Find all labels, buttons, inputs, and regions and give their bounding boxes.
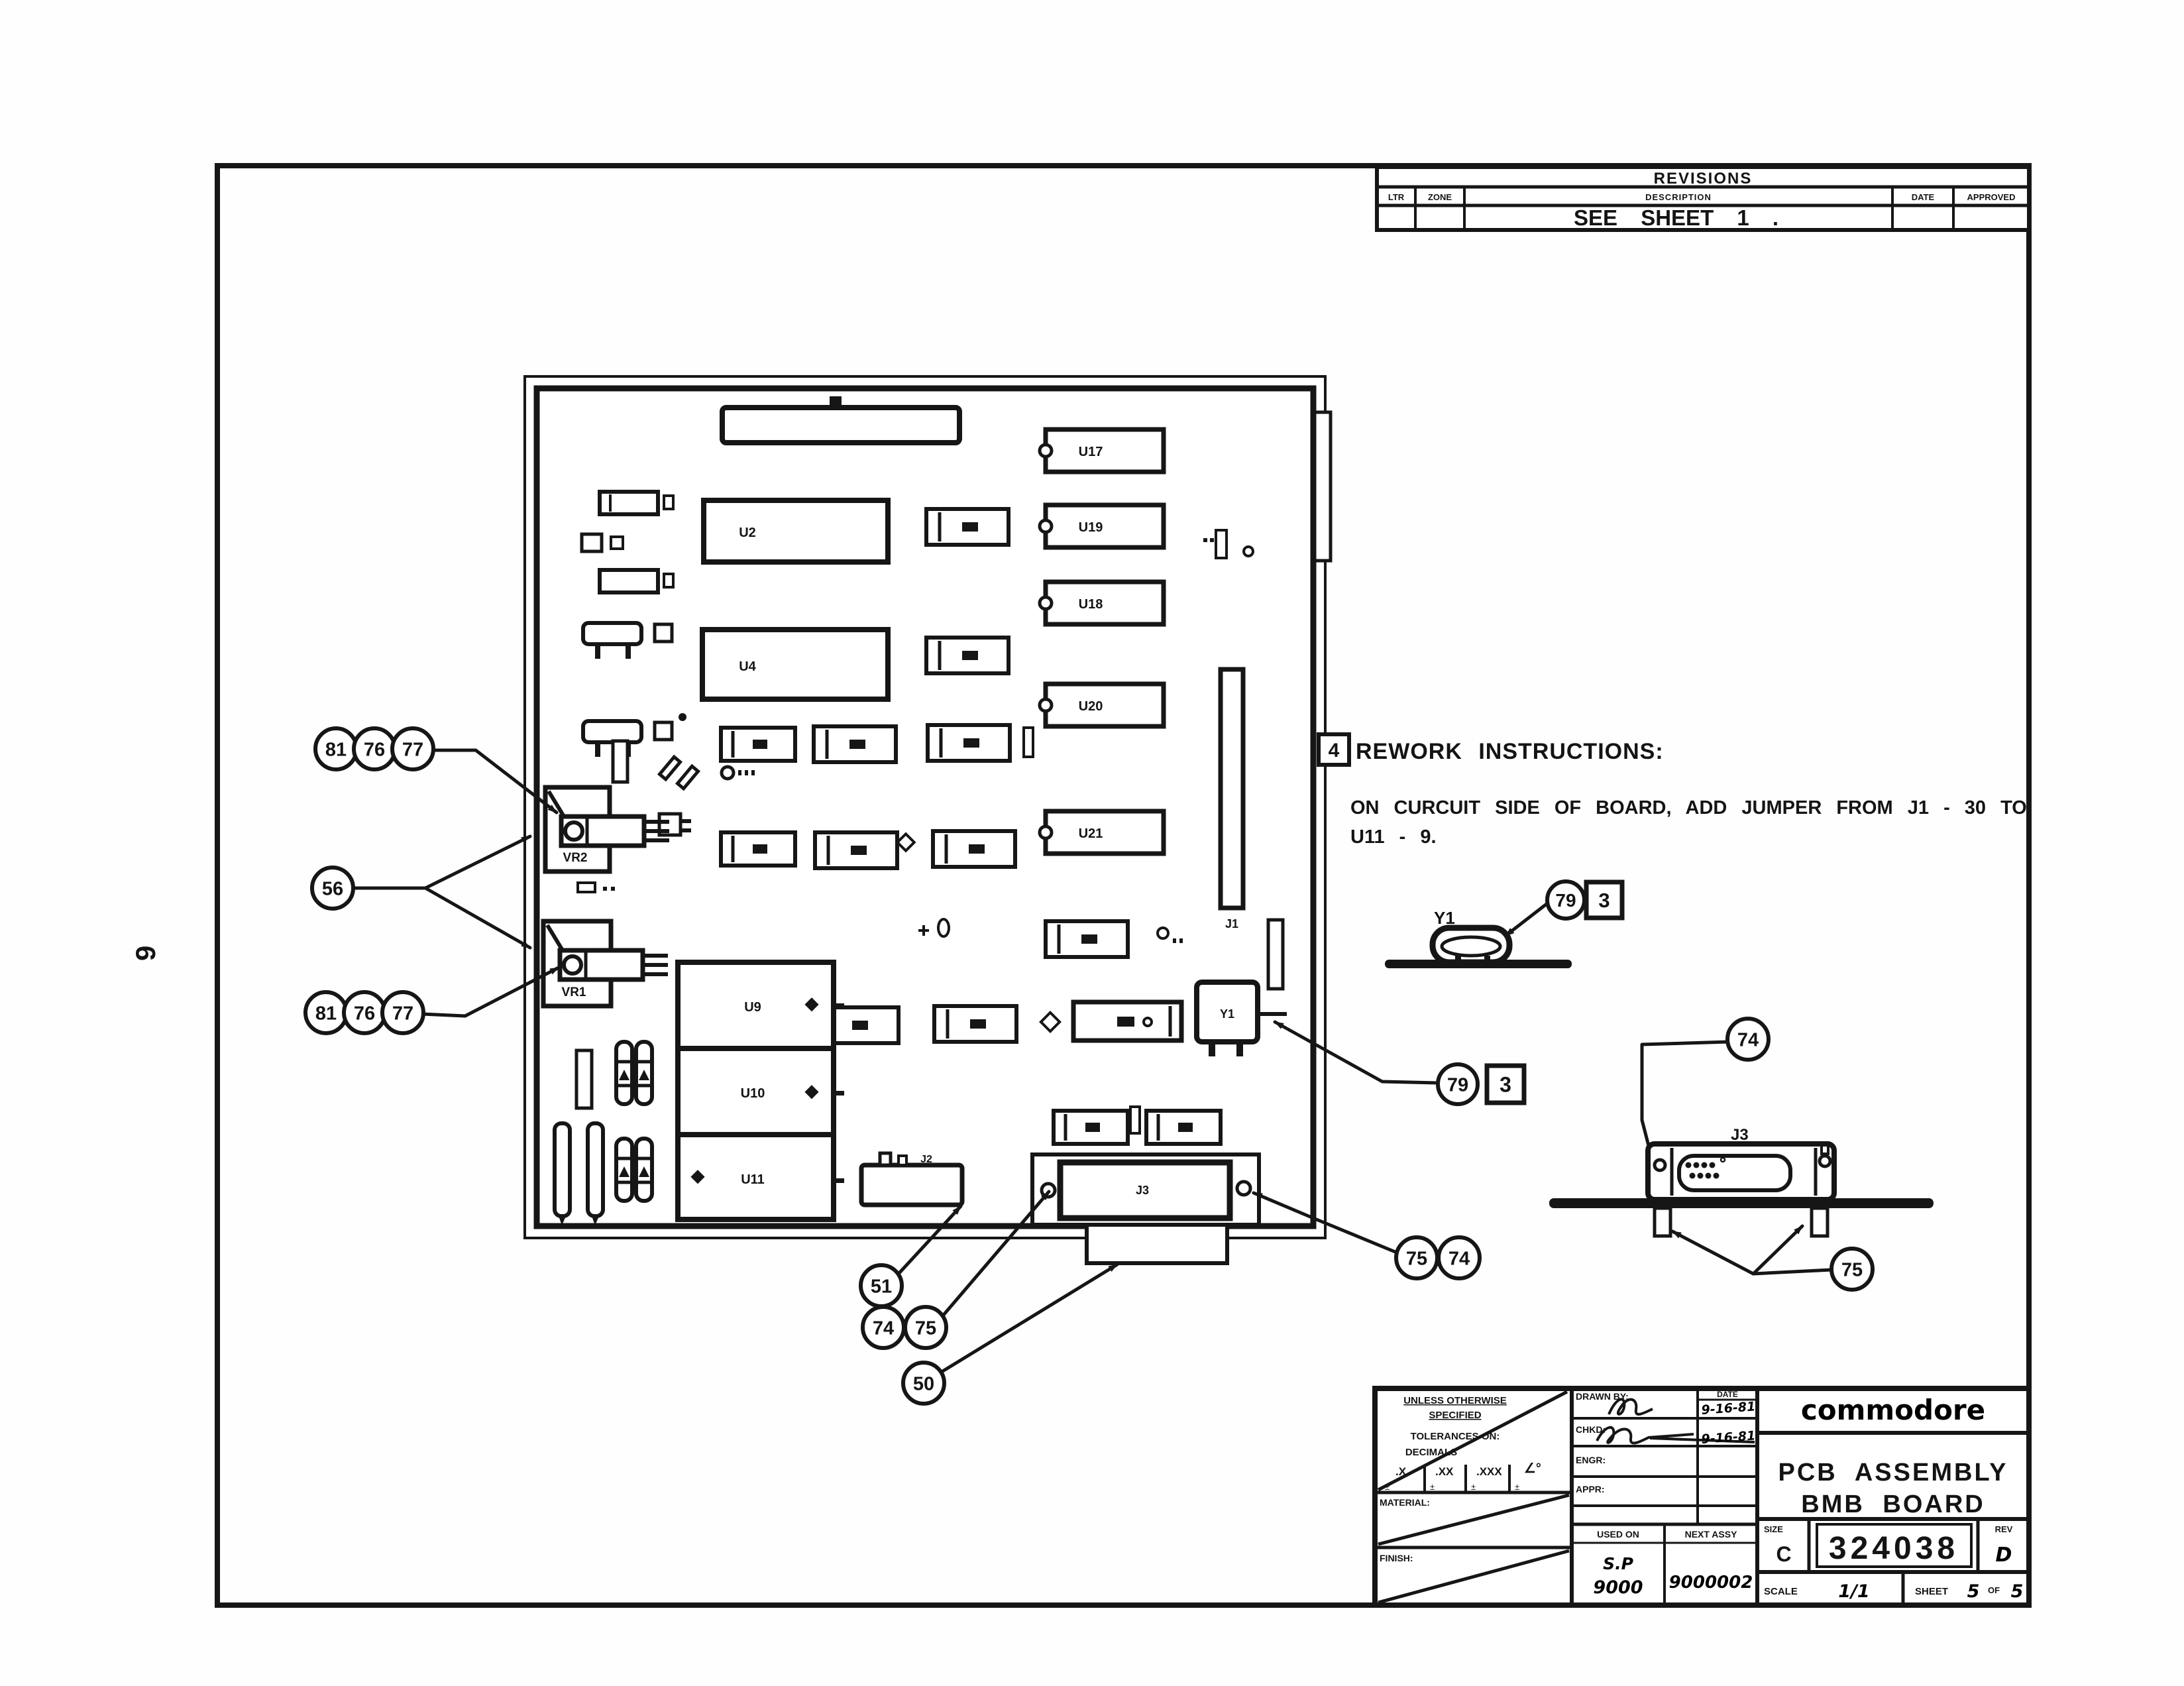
ic-u4 [702, 630, 888, 699]
edge-connector-bump [1315, 412, 1331, 561]
revisions-col-description: DESCRIPTION [1645, 192, 1712, 202]
rework-body-line1: ON CURCUIT SIDE OF BOARD, ADD JUMPER FRO… [1350, 797, 2027, 818]
rework-note-number: 4 [1329, 740, 1340, 761]
callout-79-board: 79 [1447, 1074, 1468, 1096]
tol-angle: ∠° [1524, 1461, 1541, 1476]
ic-u18-label: U18 [1079, 597, 1103, 612]
size-value: C [1776, 1542, 1791, 1566]
decimals-label: DECIMALS [1405, 1447, 1457, 1458]
regulator-vr2-label: VR2 [563, 851, 588, 865]
tol-pm-4: ± [1515, 1482, 1519, 1492]
revisions-table: REVISIONS LTR ZONE DESCRIPTION DATE APPR… [1377, 167, 2029, 230]
page-side-number: 9 [130, 946, 161, 961]
connector-j3-board-label: J3 [1136, 1184, 1149, 1197]
connector-detail-label: J3 [1731, 1126, 1749, 1144]
used-on-line1: S.P [1603, 1554, 1633, 1573]
module-u9-label: U9 [744, 1000, 761, 1015]
sheet-total: 5 [2011, 1581, 2024, 1602]
tol-x: .X [1395, 1465, 1407, 1478]
crystal-detail-label: Y1 [1434, 908, 1455, 928]
title-block: UNLESS OTHERWISE SPECIFIED TOLERANCES ON… [1375, 1388, 2029, 1605]
callout-50: 50 [913, 1373, 934, 1394]
callout-75-bottom: 75 [915, 1318, 936, 1339]
used-on-line2: 9000 [1593, 1577, 1643, 1598]
callout-77-top: 77 [402, 739, 423, 760]
ic-u17-label: U17 [1079, 445, 1103, 459]
appr-label: APPR: [1576, 1484, 1605, 1494]
spec-line2: SPECIFIED [1429, 1410, 1481, 1421]
callout-74-bottom: 74 [873, 1318, 894, 1339]
callout-79-detail: 79 [1555, 890, 1576, 911]
tol-pm-1: ± [1385, 1482, 1390, 1492]
edge-slot [1268, 920, 1283, 989]
tolerances-label: TOLERANCES ON: [1411, 1431, 1500, 1442]
rev-label: REV [1995, 1524, 2013, 1534]
date-label: DATE [1717, 1390, 1738, 1399]
callout-75-right: 75 [1406, 1248, 1427, 1269]
ic-u21-label: U21 [1079, 826, 1103, 841]
rework-body-line2: U11 - 9. [1350, 826, 1437, 848]
revisions-title: REVISIONS [1654, 170, 1753, 188]
finish-label: FINISH: [1380, 1553, 1413, 1563]
used-on-label: USED ON [1597, 1529, 1639, 1540]
revisions-col-approved: APPROVED [1967, 192, 2016, 202]
crystal-y1-board-label: Y1 [1220, 1007, 1234, 1021]
flag-3-board: 3 [1500, 1073, 1511, 1097]
module-u11-label: U11 [741, 1172, 765, 1187]
size-label: SIZE [1764, 1524, 1783, 1534]
regulator-vr1-label: VR1 [562, 985, 586, 999]
crystal-detail: Y1 [1385, 908, 1572, 968]
connector-detail: J3 [1549, 1126, 1934, 1236]
next-assy-value: 9000002 [1669, 1573, 1753, 1593]
tol-xxx: .XXX [1476, 1465, 1502, 1478]
revisions-col-zone: ZONE [1428, 192, 1452, 202]
tol-xx: .XX [1435, 1465, 1454, 1478]
tol-pm-2: ± [1430, 1482, 1435, 1492]
ic-u19-label: U19 [1079, 520, 1103, 535]
engr-label: ENGR: [1576, 1455, 1606, 1465]
callout-76-bottom: 76 [354, 1003, 375, 1024]
callout-74-detail: 74 [1737, 1029, 1759, 1050]
material-label: MATERIAL: [1380, 1497, 1430, 1508]
flag-3-detail: 3 [1598, 889, 1610, 912]
ic-u2-label: U2 [739, 526, 756, 540]
of-label: OF [1988, 1585, 2000, 1595]
next-assy-label: NEXT ASSY [1685, 1529, 1737, 1540]
drawing-sheet: 9 REVISIONS LTR ZONE DESCRIPTION DATE AP… [0, 0, 2184, 1686]
connector-j2-label: J2 [920, 1154, 932, 1165]
ic-u4-label: U4 [739, 659, 756, 674]
module-stack: U9 U10 U11 [678, 962, 844, 1219]
scale-value: 1/1 [1838, 1581, 1869, 1602]
rework-instructions: 4 REWORK INSTRUCTIONS: ON CURCUIT SIDE O… [1319, 734, 2027, 848]
callout-76-top: 76 [364, 739, 385, 760]
callout-77-bottom: 77 [392, 1003, 413, 1024]
callout-81-top: 81 [325, 739, 347, 760]
scale-label: SCALE [1764, 1586, 1798, 1597]
connector-j1-label: J1 [1225, 917, 1238, 930]
ic-u2 [704, 500, 888, 562]
ic-u20-label: U20 [1079, 699, 1103, 714]
revisions-col-date: DATE [1912, 192, 1935, 202]
revision-entry: SEE SHEET 1 . [1574, 205, 1778, 230]
callout-81-bottom: 81 [315, 1003, 337, 1024]
tol-pm-3: ± [1471, 1482, 1476, 1492]
brand-logo: commodore [1801, 1394, 1985, 1426]
connector-j3-board: J3 [1032, 1154, 1259, 1263]
pcb-board: U17 U19 U18 U20 U21 J1 U2 U4 [525, 376, 1331, 1263]
revisions-col-ltr: LTR [1388, 192, 1405, 202]
rework-heading: REWORK INSTRUCTIONS: [1356, 739, 1664, 764]
sheet-number: 5 [1967, 1581, 1980, 1602]
spec-line1: UNLESS OTHERWISE [1403, 1395, 1507, 1406]
drawing-title-line2: BMB BOARD [1801, 1490, 1985, 1518]
callout-56: 56 [322, 878, 343, 899]
connector-j1 [1221, 669, 1243, 908]
callout-74-right: 74 [1448, 1248, 1470, 1269]
sheet-label: SHEET [1915, 1586, 1948, 1597]
small-ic [926, 509, 1009, 545]
drawing-number: 324038 [1829, 1531, 1959, 1566]
rev-value: D [1996, 1544, 2012, 1567]
drawing-title-line1: PCB ASSEMBLY [1778, 1459, 2008, 1487]
small-ic [926, 638, 1009, 673]
small-cap [1216, 530, 1227, 558]
small-ic [1046, 921, 1128, 957]
callout-51: 51 [871, 1276, 892, 1297]
callout-75-detail: 75 [1841, 1259, 1863, 1280]
module-u10-label: U10 [741, 1086, 765, 1101]
